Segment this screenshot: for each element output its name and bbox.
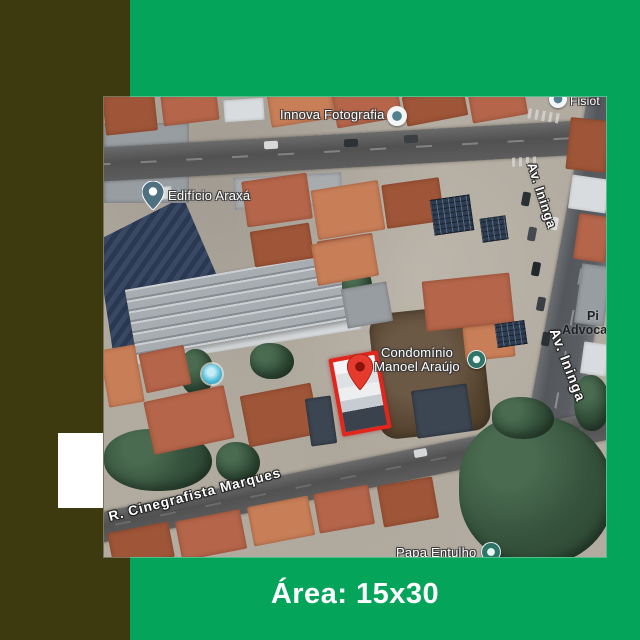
car [344,139,358,148]
roof [143,385,234,455]
poi-label-edificio: Edifício Araxá [168,189,250,203]
roof [377,476,439,527]
roof [565,117,606,173]
poi-label-condominio: Condomínio Manoel Araújo [354,346,480,373]
teardrop-pin-icon [142,181,164,210]
poi-dot-icon [481,542,501,557]
poi-dot-icon [387,106,407,126]
condominio-line1: Condomínio [354,346,480,360]
roof [313,484,375,533]
solar-panels [479,215,508,242]
car [536,296,546,311]
trees [492,397,554,439]
car [527,226,537,241]
building [411,383,473,438]
white-box [58,433,103,508]
rooftop [580,341,606,376]
condominio-line2: Manoel Araújo [354,360,480,374]
poi-label-advocacia-line2: Advoca [562,323,606,337]
listing-image: Innova Fotografia Fisiot Edifício Araxá … [0,0,640,640]
poi-dot-icon [549,97,567,108]
swimming-pool [202,364,222,384]
solar-panels [430,194,475,235]
poi-label-advocacia-line1: Pi [587,309,599,323]
car [531,261,541,276]
car [264,141,278,150]
roof [160,97,219,126]
roof [311,180,386,240]
roof [402,97,469,127]
car [521,191,531,206]
building [341,281,393,328]
roof [104,97,158,136]
roof [241,173,313,228]
poi-label-papa-entulho: Papa Entulho [396,546,476,557]
crosswalk [527,108,560,123]
poi-label-fisio: Fisiot [570,97,600,109]
building [305,395,337,446]
rooftop [568,175,606,214]
area-caption: Área: 15x30 [104,578,606,611]
poi-dot-icon [467,350,486,369]
poi-label-innova: Innova Fotografia [280,108,385,122]
solar-panels [494,320,527,348]
car [404,135,418,144]
roof [468,97,528,124]
rooftop [223,98,264,123]
roof [573,213,606,263]
satellite-map: Innova Fotografia Fisiot Edifício Araxá … [104,97,606,557]
trees [250,343,294,379]
